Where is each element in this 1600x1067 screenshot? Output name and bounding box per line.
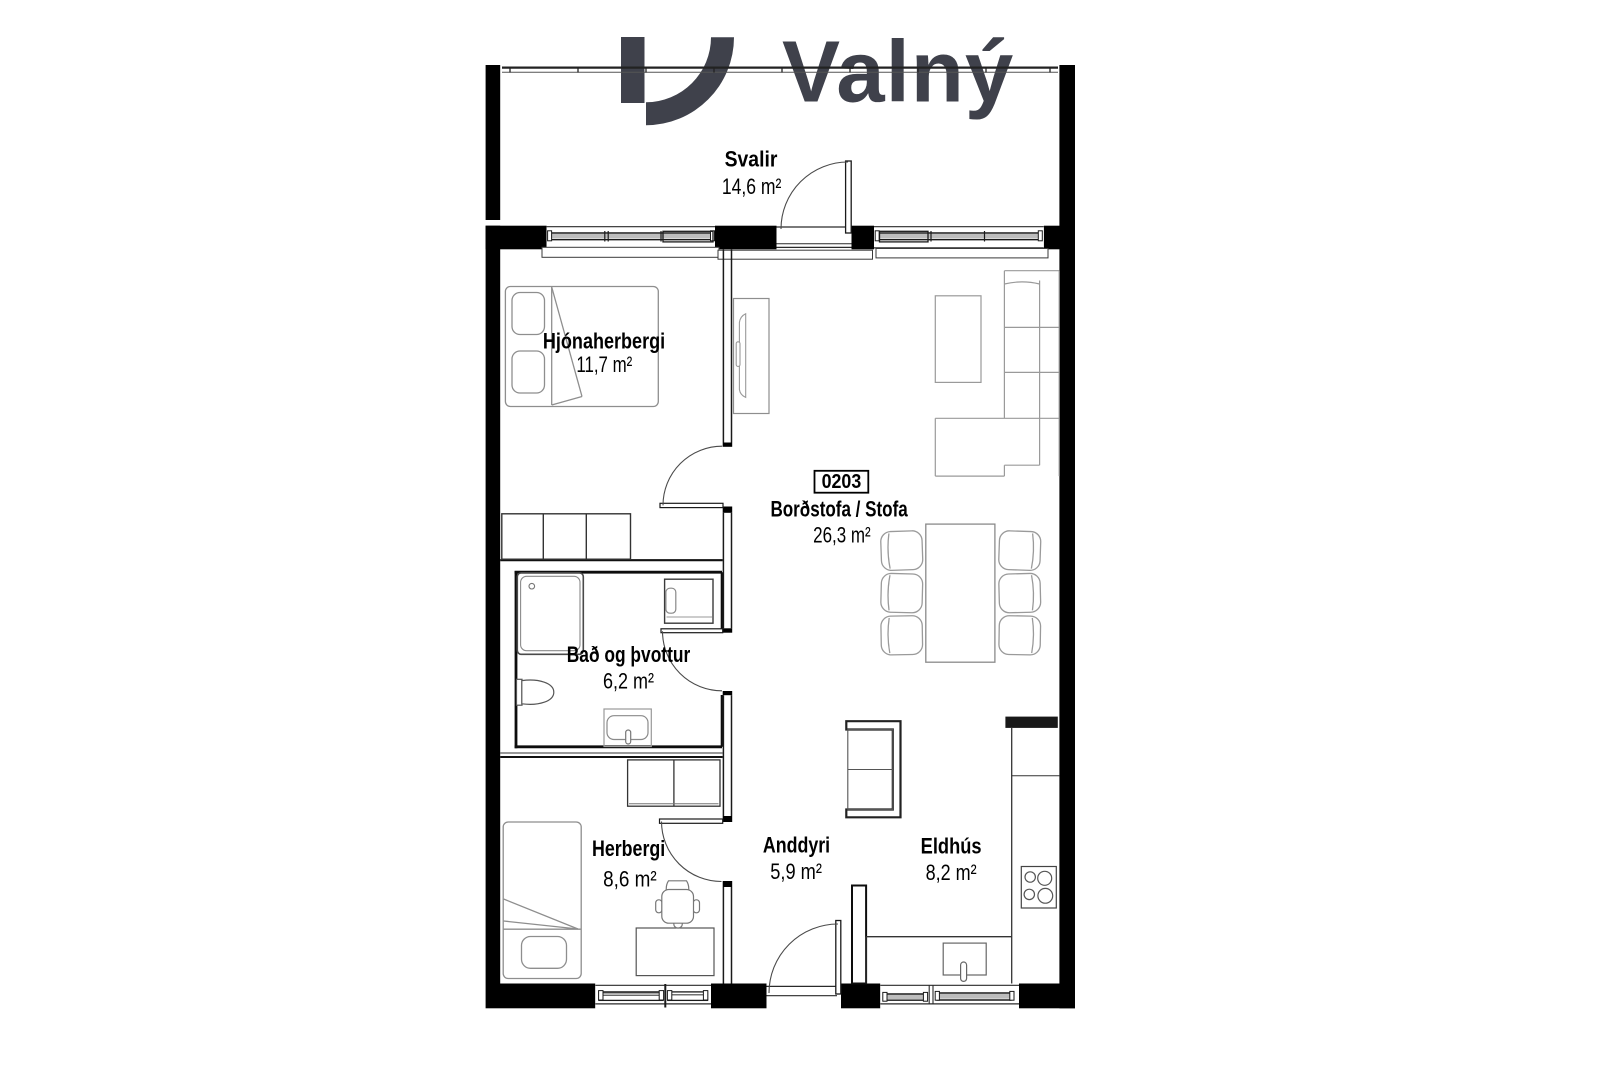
- svg-text:Eldhús: Eldhús: [921, 835, 982, 859]
- svg-text:Hjónaherbergi: Hjónaherbergi: [543, 330, 665, 354]
- svg-text:Svalir: Svalir: [725, 147, 778, 171]
- svg-text:6,2 m²: 6,2 m²: [603, 670, 654, 694]
- svg-text:Anddyri: Anddyri: [763, 834, 830, 858]
- svg-text:Borðstofa / Stofa: Borðstofa / Stofa: [770, 497, 908, 522]
- svg-text:8,6 m²: 8,6 m²: [603, 867, 657, 892]
- svg-text:14,6 m²: 14,6 m²: [722, 175, 782, 200]
- svg-text:5,9 m²: 5,9 m²: [770, 859, 822, 884]
- svg-text:11,7 m²: 11,7 m²: [576, 353, 632, 378]
- svg-text:Bað og þvottur: Bað og þvottur: [567, 643, 691, 667]
- svg-text:0203: 0203: [822, 471, 862, 493]
- svg-text:8,2 m²: 8,2 m²: [926, 861, 977, 885]
- svg-text:Herbergi: Herbergi: [592, 837, 665, 861]
- svg-text:26,3 m²: 26,3 m²: [813, 523, 871, 548]
